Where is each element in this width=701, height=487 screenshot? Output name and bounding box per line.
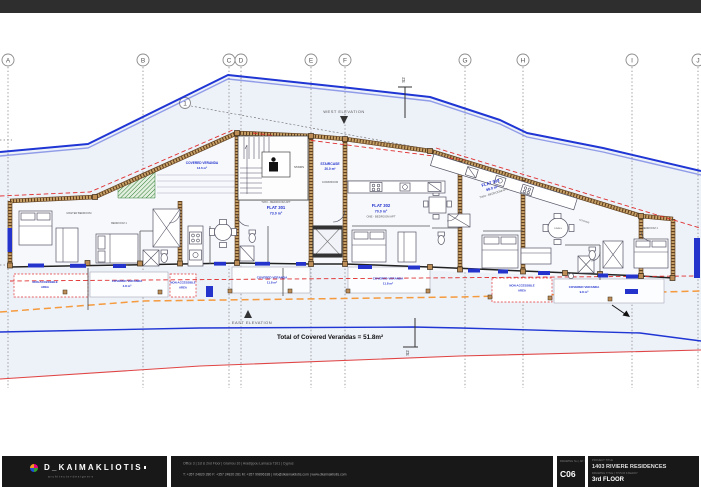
bed (19, 211, 52, 245)
flat-302-type: ONE - BEDROOM APT (366, 215, 395, 219)
bed (352, 230, 386, 262)
company-logo-icon (30, 464, 38, 472)
dining-label: DINING (554, 228, 562, 230)
non-accessible-label: NON-ACCESSIBLE (32, 280, 57, 284)
non-accessible-box (14, 274, 88, 297)
staircase-area: 20.0 m² (325, 167, 336, 171)
svg-text:E: E (309, 57, 314, 64)
staircase-label: STAIRCASE (320, 162, 340, 166)
bedroom1-label: BEDROOM 1 (111, 221, 127, 225)
sheet-title-value: 3rd FLOOR (592, 477, 624, 483)
office-contact: T: +357 24820 280 F: +357 24820 281 M: +… (183, 473, 347, 477)
floor-plan-svg: A B C D E F G H I J 1 (0, 0, 701, 487)
sofa (56, 228, 78, 262)
project-title-value: 1403 RIVIERE RESIDENCES (592, 464, 666, 470)
svg-text:D: D (239, 57, 244, 64)
veranda-area: 4.8 m² (123, 284, 132, 288)
drawing-sheet: A B C D E F G H I J 1 (0, 0, 701, 487)
flat-301-area: 73.0 m² (270, 212, 283, 216)
veranda-area: 9.8 m² (580, 290, 589, 294)
logo-square-icon (144, 466, 147, 469)
title-block-drawing-number: DRAWING No | ΑΡ. ΣΧΕΔΙΟΥ C06 (557, 456, 585, 487)
drawing-number-value: C06 (560, 469, 576, 479)
non-accessible-label2: AREA (179, 286, 187, 290)
svg-text:A: A (6, 57, 11, 64)
veranda-label: COVERED VERANDA (257, 276, 288, 280)
veranda-area: 11.8 m² (383, 282, 393, 286)
veranda-label: COVERED VERANDA (112, 279, 143, 283)
title-block: D_KAIMAKLIOTIS architects+designers Offi… (0, 456, 701, 487)
stairs-label: STAIRS (294, 165, 304, 169)
svg-text:J: J (696, 57, 699, 64)
sofa (521, 248, 551, 264)
flat-302-name: FLAT 302 (372, 203, 391, 208)
veranda-label: COVERED VERANDA (373, 277, 404, 281)
kitchen-counter (348, 181, 445, 193)
veranda-label: COVERED VERANDA (569, 285, 600, 289)
bedroom1-label: BEDROOM 1 (642, 226, 658, 230)
west-elevation-label: WEST ELEVATION (323, 109, 364, 114)
company-tagline: architects+designers (48, 475, 94, 479)
svg-text:S2: S2 (401, 77, 406, 83)
non-accessible-label: NON-ACCESSIBLE (509, 284, 534, 288)
non-accessible-label2: AREA (518, 289, 526, 293)
svg-text:G: G (462, 57, 467, 64)
svg-text:I: I (631, 57, 633, 64)
title-block-logo-section: D_KAIMAKLIOTIS architects+designers (2, 456, 167, 487)
svg-text:H: H (521, 57, 526, 64)
title-block-address-section: Office 3 | 1st & 2nd Floor | Gramou 10 |… (171, 456, 553, 487)
svg-text:F: F (343, 57, 347, 64)
wardrobe (603, 241, 623, 268)
master-bedroom-label: MASTER BEDROOM (67, 211, 92, 215)
bed (96, 234, 138, 263)
east-elevation-label: EAST ELEVATION (232, 320, 272, 325)
project-title-label: PROJECT TITLE (592, 459, 613, 462)
flat-301-name: FLAT 301 (267, 205, 286, 210)
svg-text:B: B (141, 57, 145, 64)
corridor-label: CORRIDOR (322, 180, 339, 184)
veranda-top-label: COVERED VERANDA (186, 161, 219, 165)
non-accessible-label: NON-ACCESSIBLE (170, 281, 195, 285)
flat-302-area: 70.0 m² (375, 210, 388, 214)
veranda-area: 11.8 m² (267, 281, 277, 285)
total-verandas-note: Total of Covered Verandas = 51.8m² (277, 334, 383, 341)
bed (482, 235, 518, 268)
sofa (398, 232, 416, 262)
svg-text:C: C (227, 57, 232, 64)
wardrobe (153, 209, 180, 247)
title-block-project: PROJECT TITLE 1403 RIVIERE RESIDENCES DR… (588, 456, 699, 487)
sheet-title-label: DRAWING TITLE | ΤΙΤΛΟΣ ΣΧΕΔΙΟΥ (592, 472, 638, 475)
veranda-top-area: 13.6 m² (197, 166, 207, 170)
svg-text:S2: S2 (405, 350, 410, 356)
non-accessible-label2: AREA (41, 285, 49, 289)
company-name: D_KAIMAKLIOTIS (44, 463, 143, 472)
kitchen-counter (188, 226, 203, 266)
bed (634, 239, 668, 268)
flat-301-type: TWO - BEDROOM APT (261, 200, 291, 204)
drawing-number-label: DRAWING No | ΑΡ. ΣΧΕΔΙΟΥ (560, 460, 585, 463)
office-address: Office 3 | 1st & 2nd Floor | Gramou 10 |… (183, 462, 294, 466)
